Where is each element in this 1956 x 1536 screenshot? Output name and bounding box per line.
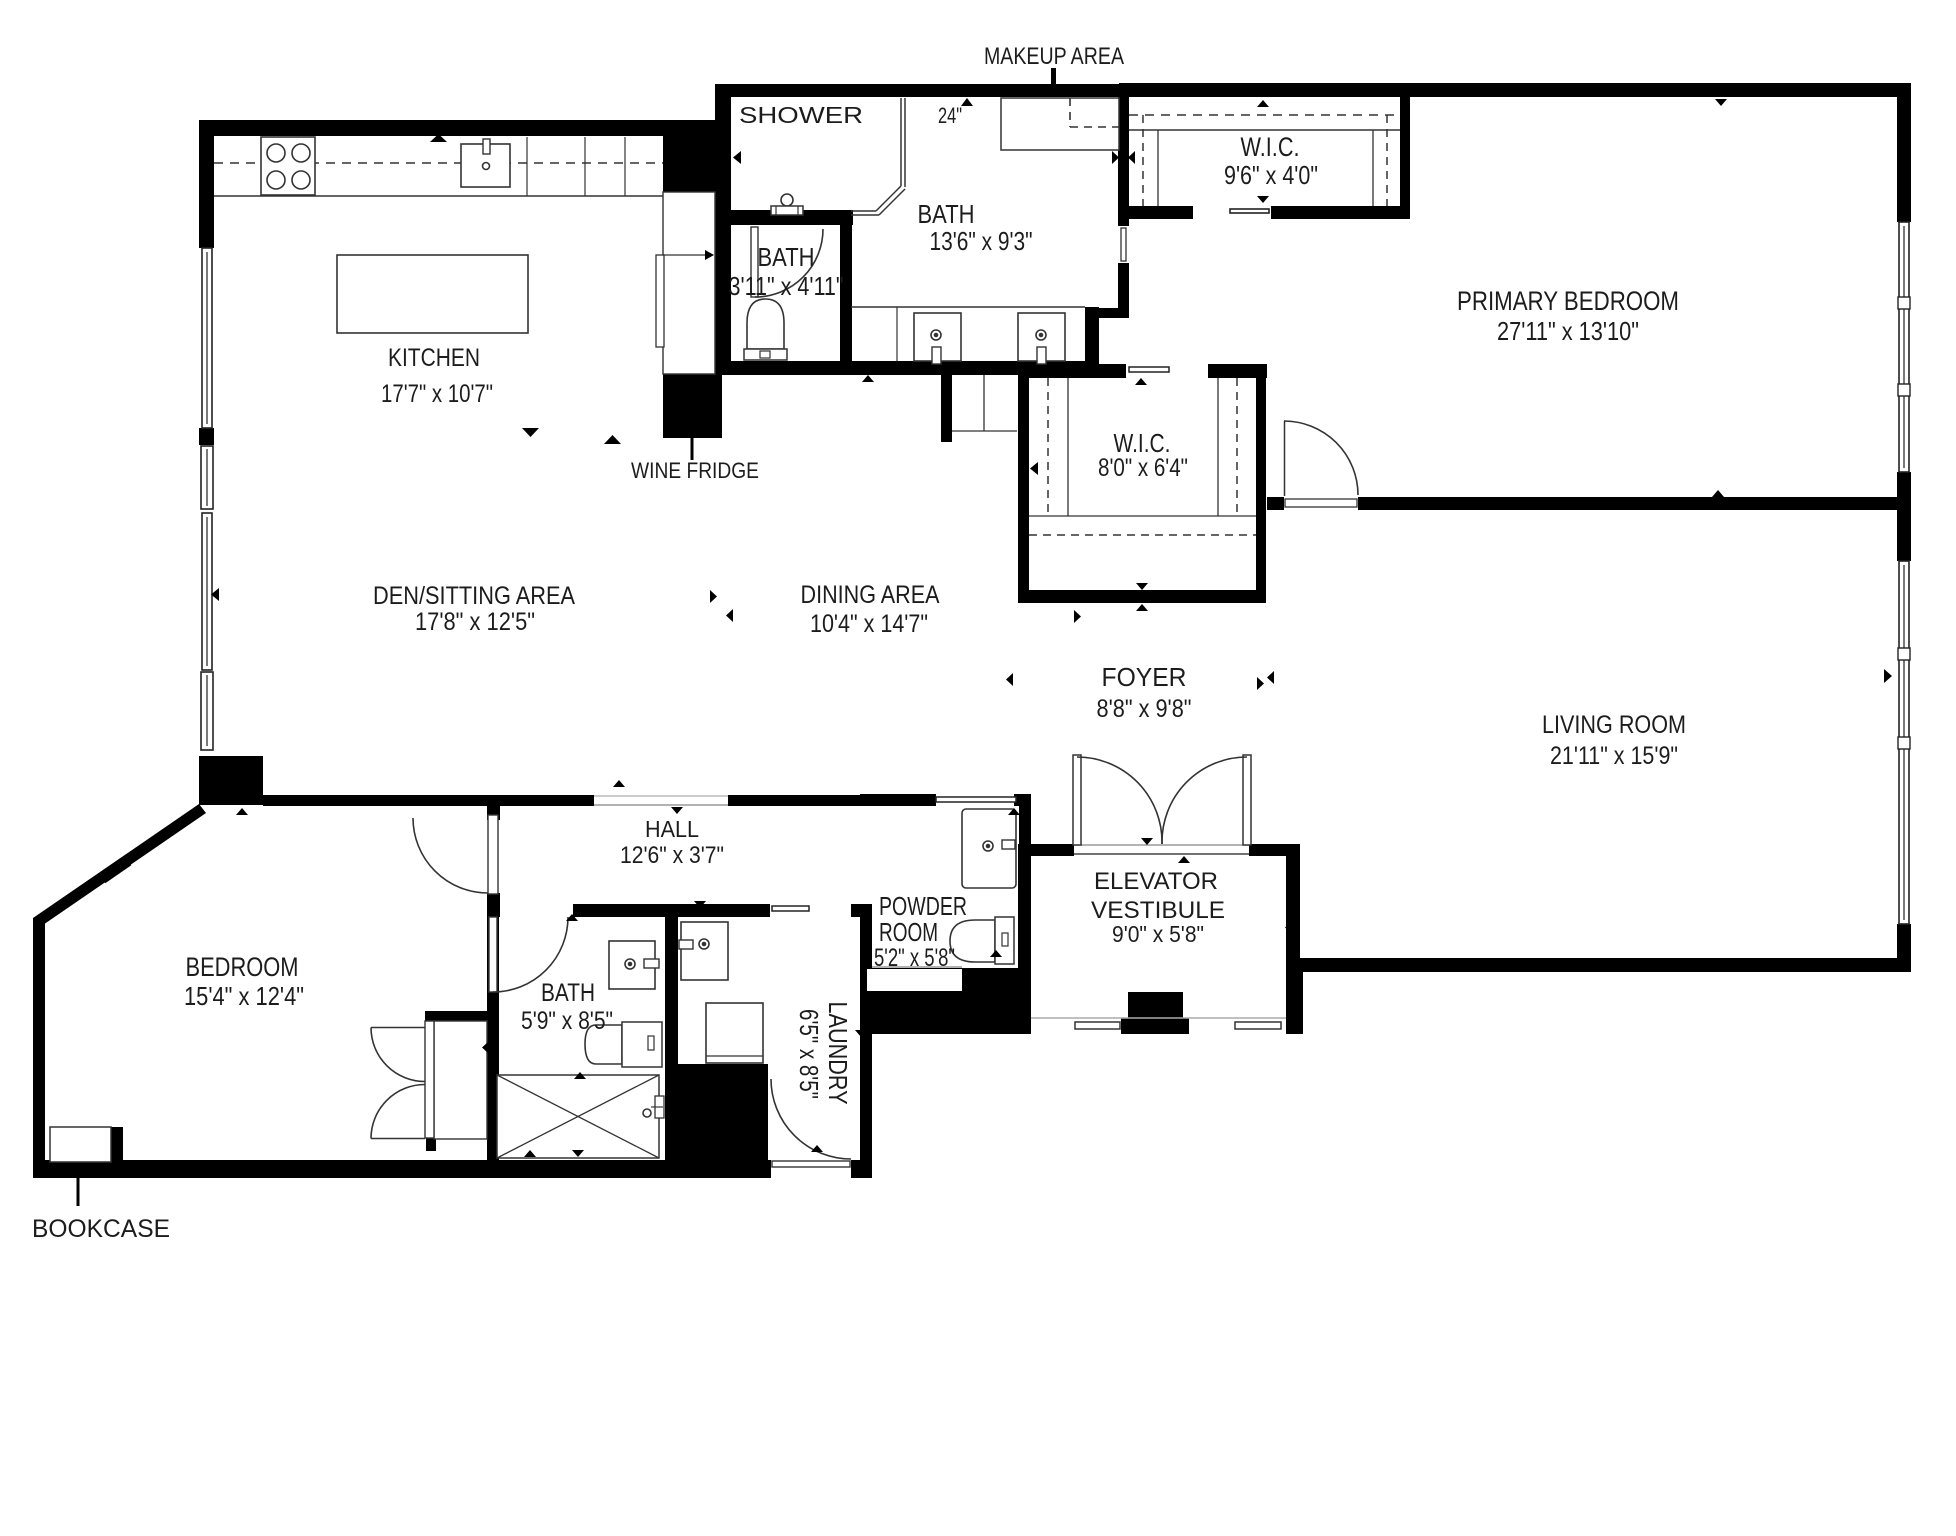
svg-text:SHOWER: SHOWER bbox=[739, 102, 863, 128]
svg-text:BOOKCASE: BOOKCASE bbox=[32, 1215, 170, 1243]
svg-text:DEN/SITTING AREA: DEN/SITTING AREA bbox=[373, 582, 575, 610]
svg-text:KITCHEN: KITCHEN bbox=[388, 344, 480, 372]
svg-text:5'9" x 8'5": 5'9" x 8'5" bbox=[521, 1007, 613, 1035]
svg-text:9'6" x 4'0": 9'6" x 4'0" bbox=[1224, 160, 1318, 190]
svg-text:17'7" x 10'7": 17'7" x 10'7" bbox=[381, 380, 493, 408]
svg-text:BATH: BATH bbox=[918, 199, 975, 229]
svg-text:13'6" x 9'3": 13'6" x 9'3" bbox=[930, 226, 1033, 256]
svg-text:ELEVATOR: ELEVATOR bbox=[1094, 868, 1218, 895]
svg-text:BATH: BATH bbox=[758, 242, 815, 272]
svg-text:PRIMARY BEDROOM: PRIMARY BEDROOM bbox=[1457, 286, 1679, 316]
svg-text:8'0" x 6'4": 8'0" x 6'4" bbox=[1098, 454, 1188, 482]
svg-text:10'4" x 14'7": 10'4" x 14'7" bbox=[810, 610, 928, 638]
svg-text:WINE FRIDGE: WINE FRIDGE bbox=[631, 458, 759, 483]
svg-text:LIVING ROOM: LIVING ROOM bbox=[1542, 711, 1686, 739]
svg-text:17'8" x 12'5": 17'8" x 12'5" bbox=[415, 608, 535, 636]
svg-text:BEDROOM: BEDROOM bbox=[186, 952, 299, 982]
svg-text:DINING AREA: DINING AREA bbox=[801, 581, 940, 609]
svg-text:W.I.C.: W.I.C. bbox=[1241, 132, 1300, 162]
svg-text:FOYER: FOYER bbox=[1102, 662, 1187, 692]
svg-text:8'8" x 9'8": 8'8" x 9'8" bbox=[1097, 695, 1192, 723]
svg-text:6'5" x 8'5": 6'5" x 8'5" bbox=[794, 1009, 824, 1099]
svg-text:15'4" x 12'4": 15'4" x 12'4" bbox=[184, 981, 304, 1011]
svg-text:ROOM: ROOM bbox=[879, 917, 938, 947]
svg-text:24": 24" bbox=[938, 103, 962, 128]
svg-text:MAKEUP AREA: MAKEUP AREA bbox=[984, 43, 1124, 70]
svg-text:BATH: BATH bbox=[541, 979, 595, 1007]
svg-text:9'0" x 5'8": 9'0" x 5'8" bbox=[1112, 921, 1204, 947]
svg-text:27'11" x 13'10": 27'11" x 13'10" bbox=[1497, 316, 1639, 346]
svg-text:21'11" x 15'9": 21'11" x 15'9" bbox=[1550, 742, 1678, 770]
svg-text:HALL: HALL bbox=[645, 816, 699, 842]
svg-text:LAUNDRY: LAUNDRY bbox=[823, 1002, 853, 1105]
svg-text:12'6" x 3'7": 12'6" x 3'7" bbox=[620, 842, 724, 869]
svg-text:5'2" x 5'8": 5'2" x 5'8" bbox=[874, 944, 955, 972]
svg-text:VESTIBULE: VESTIBULE bbox=[1091, 897, 1225, 924]
svg-text:3'11" x 4'11": 3'11" x 4'11" bbox=[729, 271, 844, 301]
